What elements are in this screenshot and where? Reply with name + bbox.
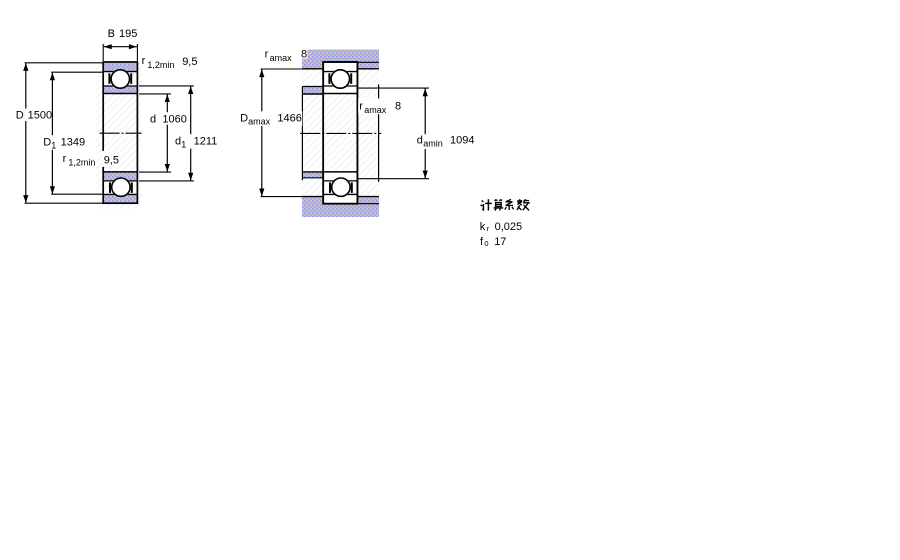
svg-text:B: B (108, 28, 115, 40)
svg-text:amax: amax (364, 105, 387, 115)
svg-text:8: 8 (395, 100, 401, 112)
svg-text:D: D (16, 110, 24, 122)
svg-text:d: d (150, 113, 156, 125)
svg-text:d: d (175, 135, 181, 147)
svg-text:1094: 1094 (450, 134, 474, 146)
svg-text:1,2min: 1,2min (68, 158, 95, 168)
svg-text:8: 8 (301, 48, 307, 60)
svg-text:d: d (417, 134, 423, 146)
svg-text:1211: 1211 (194, 135, 218, 147)
svg-text:1466: 1466 (277, 112, 301, 124)
svg-text:1500: 1500 (28, 110, 52, 122)
svg-text:1349: 1349 (61, 136, 85, 148)
svg-text:r: r (265, 48, 269, 60)
svg-text:amax: amax (248, 117, 271, 127)
svg-text:1: 1 (51, 140, 56, 150)
svg-text:0: 0 (484, 239, 488, 248)
svg-text:1: 1 (181, 139, 186, 149)
svg-text:0,025: 0,025 (495, 221, 523, 233)
svg-text:D: D (240, 112, 248, 124)
svg-text:1,2min: 1,2min (147, 60, 174, 70)
svg-text:9,5: 9,5 (182, 56, 197, 68)
svg-text:amin: amin (423, 139, 443, 149)
svg-text:1060: 1060 (162, 113, 186, 125)
svg-text:D: D (43, 136, 51, 148)
svg-text:amax: amax (270, 53, 293, 63)
svg-text:17: 17 (494, 236, 506, 248)
svg-text:k: k (480, 221, 486, 233)
svg-text:r: r (63, 153, 67, 165)
svg-text:195: 195 (119, 28, 137, 40)
svg-text:9,5: 9,5 (104, 154, 119, 166)
svg-text:r: r (142, 55, 146, 67)
svg-text:r: r (359, 101, 363, 113)
